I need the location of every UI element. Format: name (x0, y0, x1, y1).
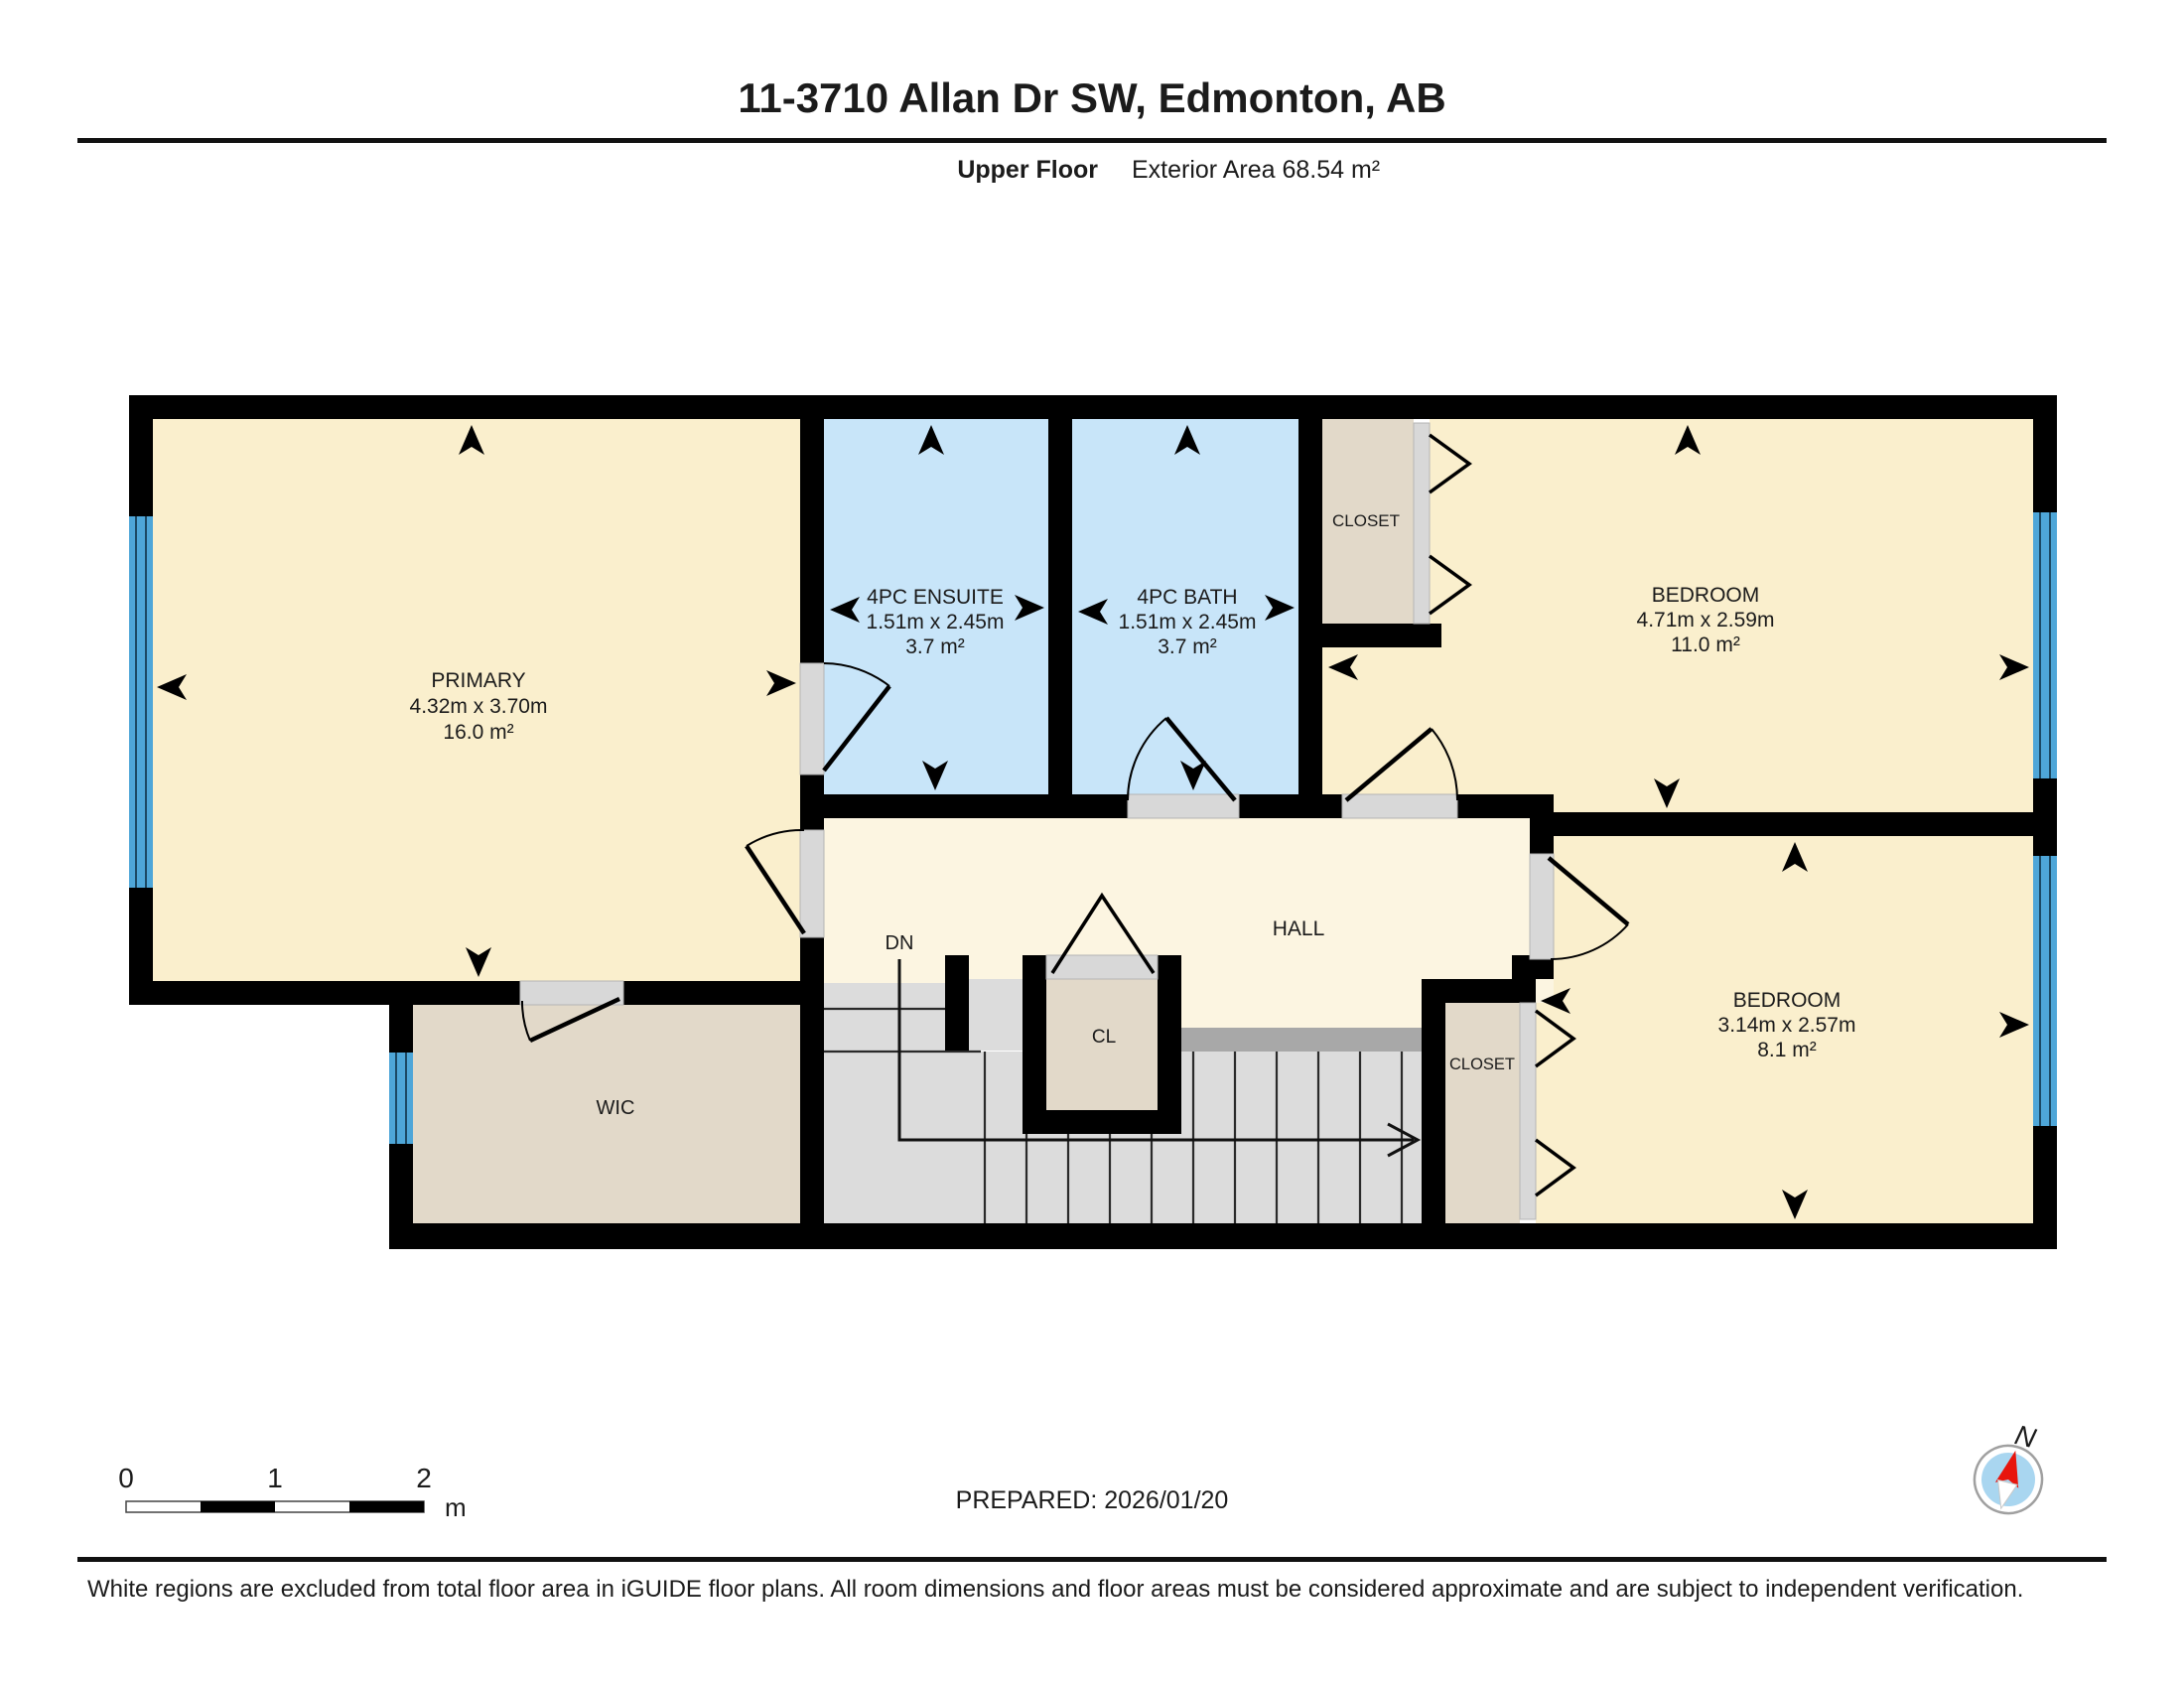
bath-name: 4PC BATH (1137, 586, 1237, 609)
cl-label: CL (1092, 1027, 1116, 1048)
window-bedroom-top-right (2033, 512, 2057, 778)
scale-tick-2: 2 (416, 1463, 432, 1493)
wall-bath-right (1298, 419, 1322, 818)
closet-bottom-fill (1445, 1003, 1520, 1223)
primary-dims: 4.32m x 3.70m (410, 695, 548, 718)
primary-area: 16.0 m² (443, 721, 513, 744)
wall-stair-stub (945, 955, 969, 1051)
closet-top-label: CLOSET (1332, 511, 1400, 530)
ensuite-dims: 1.51m x 2.45m (867, 611, 1005, 633)
window-bedroom-bottom-right (2033, 856, 2057, 1126)
bedroom-top-area: 11.0 m² (1671, 633, 1740, 656)
bath-door-opening (1128, 794, 1239, 818)
floor-plan-canvas: 11-3710 Allan Dr SW, Edmonton, AB Upper … (0, 0, 2184, 1688)
bedroom-top-name: BEDROOM (1652, 584, 1760, 607)
compass-rose-icon (1968, 1439, 2049, 1520)
bedroom-bottom-area: 8.1 m² (1757, 1039, 1817, 1061)
window-primary-left (129, 516, 153, 888)
bedroom-bottom-name: BEDROOM (1733, 989, 1842, 1012)
stair-side-opening (969, 979, 1023, 1051)
wall-top (129, 395, 2057, 419)
stair-edge-strip (1181, 1028, 1449, 1052)
bedroom-top-dims: 4.71m x 2.59m (1637, 609, 1775, 632)
wall-bath-bottom (800, 794, 1322, 818)
footer-divider (77, 1557, 2107, 1562)
ensuite-door-opening (800, 663, 824, 774)
bath-area: 3.7 m² (1158, 635, 1217, 658)
closet-bottom-bifold-track (1520, 1003, 1536, 1219)
wall-bottom (389, 1223, 2057, 1249)
scale-bar: 0 1 2 m (118, 1463, 466, 1522)
wall-wic-right (800, 981, 824, 1223)
wall-bedroom-top-left-seg (1322, 794, 1342, 818)
footer: White regions are excluded from total fl… (77, 1557, 2107, 1603)
bath-dims: 1.51m x 2.45m (1119, 611, 1257, 633)
compass-north-label: N (2012, 1419, 2040, 1454)
bedroom-bottom-dims: 3.14m x 2.57m (1718, 1014, 1856, 1037)
wall-cl-left (1023, 955, 1046, 1134)
scale-bar-seg-2 (349, 1501, 424, 1512)
scale-unit-label: m (445, 1492, 467, 1522)
wall-closet-bottom-corner (1512, 955, 1536, 1003)
header: 11-3710 Allan Dr SW, Edmonton, AB Upper … (77, 74, 2107, 184)
wall-closet-bottom-left (1422, 1003, 1445, 1223)
prepared-date-label: PREPARED: 2026/01/20 (956, 1486, 1229, 1514)
wall-cl-bottom (1023, 1110, 1181, 1134)
wic-label: WIC (597, 1097, 635, 1119)
exterior-area-label: Exterior Area 68.54 m² (1132, 156, 1380, 184)
primary-name: PRIMARY (431, 669, 525, 692)
wall-corner-block (1530, 794, 1554, 840)
wic-door-opening (520, 981, 623, 1005)
wall-closet-top-bottom (1298, 624, 1441, 647)
header-divider (77, 138, 2107, 143)
bedroom-bottom-door-opening (1530, 854, 1554, 959)
footer-disclaimer: White regions are excluded from total fl… (87, 1576, 2023, 1603)
floor-label: Upper Floor (957, 156, 1098, 184)
ensuite-area: 3.7 m² (905, 635, 965, 658)
wall-cl-right (1158, 955, 1181, 1134)
closet-top-bifold-track (1414, 423, 1430, 624)
bedroom-top-door-opening (1342, 794, 1457, 818)
hall-label: HALL (1273, 917, 1325, 940)
window-wic-left (389, 1053, 413, 1144)
scale-tick-0: 0 (118, 1463, 134, 1493)
scale-tick-1: 1 (267, 1463, 283, 1493)
primary-door-opening (800, 830, 824, 937)
page-title: 11-3710 Allan Dr SW, Edmonton, AB (738, 74, 1445, 121)
wall-bedroom-divider (1554, 812, 2057, 836)
dn-label: DN (886, 932, 914, 954)
compass: N (1968, 1419, 2049, 1520)
scale-bar-seg-1 (201, 1501, 275, 1512)
wall-primary-bottom (129, 981, 824, 1005)
floor-plan-page: 11-3710 Allan Dr SW, Edmonton, AB Upper … (0, 0, 2184, 1688)
closet-bottom-label: CLOSET (1449, 1055, 1515, 1073)
ensuite-name: 4PC ENSUITE (867, 586, 1004, 609)
wall-ensuite-bath (1048, 419, 1072, 818)
